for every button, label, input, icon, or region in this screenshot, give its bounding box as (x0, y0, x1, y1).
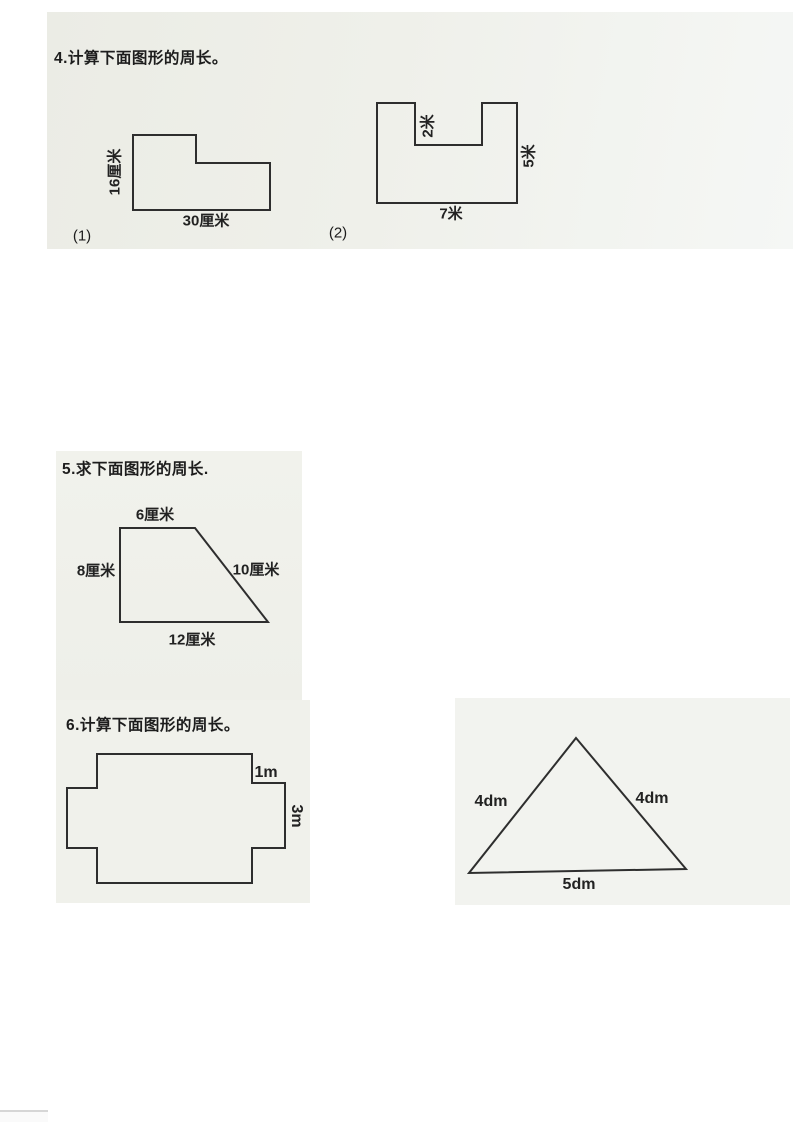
triangle-left-dimension: 4dm (475, 793, 508, 811)
problem5-heading: 5.求下面图形的周长. (62, 457, 209, 479)
figure2-bottom-dimension: 7米 (439, 203, 462, 224)
figure1-caption: (1) (73, 228, 91, 245)
figure1-bottom-dimension: 30厘米 (183, 210, 230, 231)
figure2-right-dimension: 5米 (518, 144, 539, 167)
problem6-heading: 6.计算下面图形的周长。 (66, 713, 240, 735)
trapezoid-bottom-dimension: 12厘米 (169, 629, 216, 650)
worksheet-page: 4.计算下面图形的周长。 16厘米 30厘米 (1) 2米 5米 7米 (2) … (0, 0, 793, 1122)
trapezoid-left-dimension: 8厘米 (77, 560, 115, 581)
figure1-left-dimension: 16厘米 (104, 149, 125, 196)
trapezoid-slant-dimension: 10厘米 (233, 559, 280, 580)
scan-corner-artifact (0, 1110, 48, 1122)
cross-right-dimension: 3m (287, 804, 305, 827)
figure2-notch-dimension: 2米 (417, 114, 438, 137)
triangle-right-dimension: 4dm (636, 790, 669, 808)
problem4-heading: 4.计算下面图形的周长。 (54, 46, 228, 68)
trapezoid-top-dimension: 6厘米 (136, 504, 174, 525)
cross-step-dimension: 1m (254, 764, 277, 782)
figure2-caption: (2) (329, 225, 347, 242)
triangle-bottom-dimension: 5dm (563, 876, 596, 894)
